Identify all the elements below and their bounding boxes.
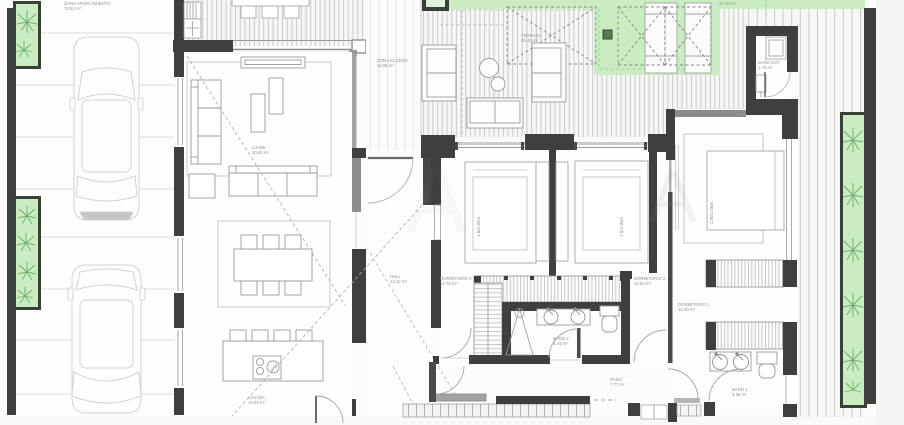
svg-text:30.63 m²: 30.63 m² bbox=[252, 150, 270, 155]
svg-text:A: A bbox=[648, 155, 698, 238]
svg-text:16.30 m²: 16.30 m² bbox=[678, 307, 696, 312]
svg-text:37.36 m²: 37.36 m² bbox=[719, 1, 737, 6]
svg-text:14.83 m²: 14.83 m² bbox=[248, 400, 266, 405]
svg-text:4.44 m²: 4.44 m² bbox=[553, 341, 568, 346]
svg-text:4.35 m²: 4.35 m² bbox=[732, 392, 747, 397]
svg-text:2.00x2.00m: 2.00x2.00m bbox=[709, 201, 714, 224]
svg-text:11.06 m²: 11.06 m² bbox=[377, 63, 394, 68]
svg-text:36.45 m²: 36.45 m² bbox=[521, 38, 539, 43]
svg-text:1.8x2.00m: 1.8x2.00m bbox=[476, 217, 481, 237]
svg-text:1.8x2.00m: 1.8x2.00m bbox=[619, 217, 624, 237]
svg-text:13.64 m²: 13.64 m² bbox=[634, 281, 652, 286]
svg-text:14.75 m²: 14.75 m² bbox=[440, 281, 458, 286]
svg-text:1.76 m²: 1.76 m² bbox=[758, 65, 773, 70]
svg-text:13.42 m²: 13.42 m² bbox=[390, 279, 408, 284]
svg-text:A: A bbox=[406, 150, 468, 252]
svg-text:73.52 m²: 73.52 m² bbox=[64, 6, 82, 11]
svg-text:7.77 m²: 7.77 m² bbox=[610, 382, 625, 387]
